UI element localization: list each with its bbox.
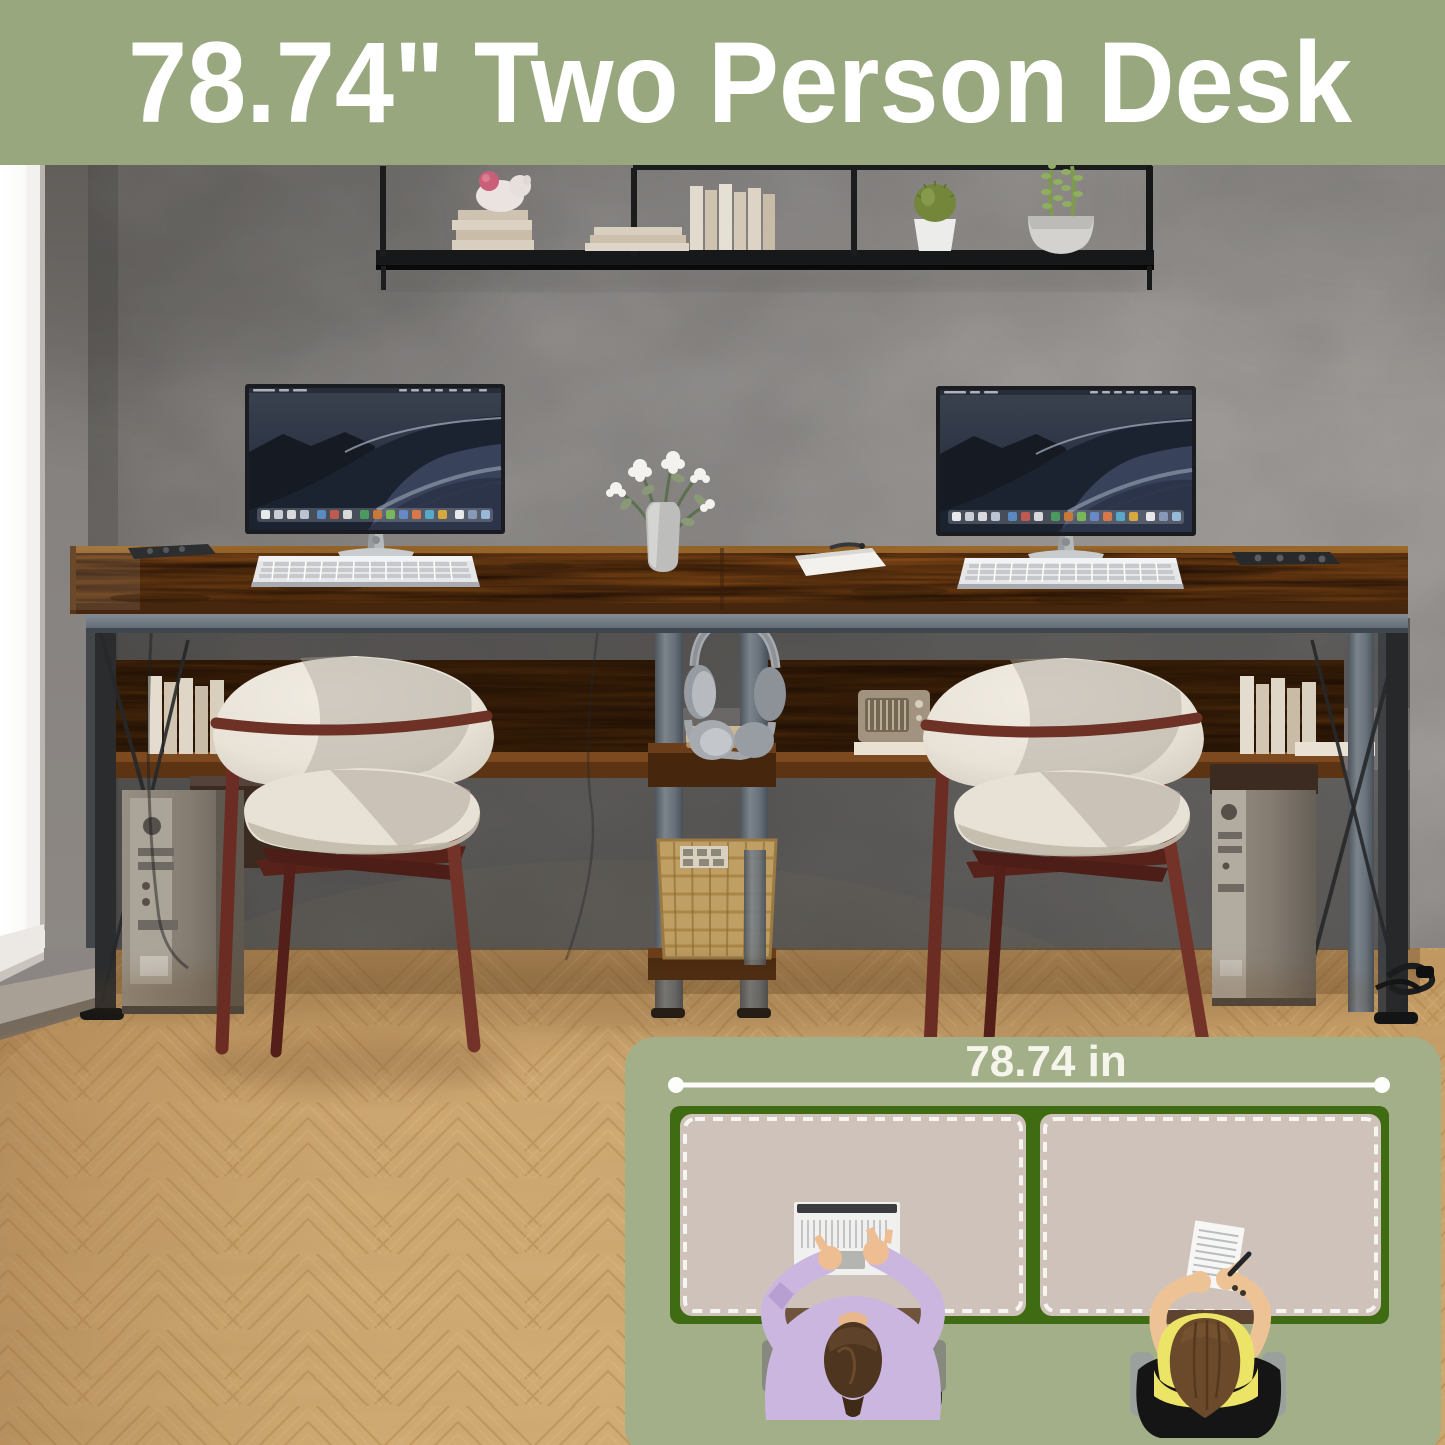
svg-text:78.74" Two Person Desk: 78.74" Two Person Desk — [128, 19, 1353, 147]
svg-text:78.74 in: 78.74 in — [965, 1037, 1126, 1086]
